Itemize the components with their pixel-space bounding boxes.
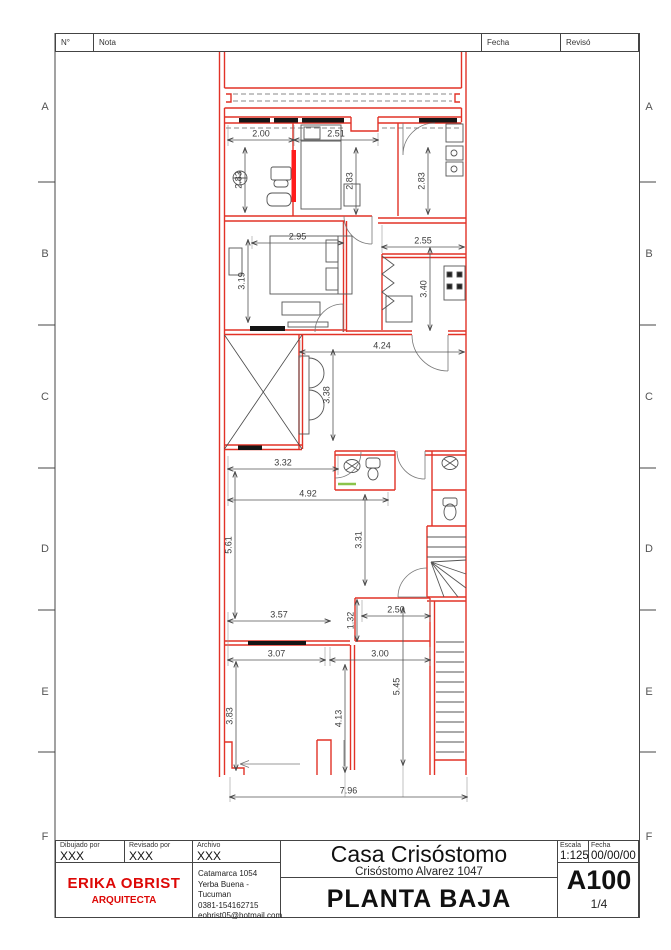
grid-row-letter: F [38, 831, 52, 843]
header-col-no: N° [56, 34, 94, 51]
grid-row-letter: A [38, 101, 52, 113]
grid-row-letter: C [642, 391, 656, 403]
floor-plan: 2.002.512.952.554.243.324.922.503.573.07… [0, 0, 671, 950]
architect-title: ARQUITECTA [56, 895, 192, 906]
kitchen-counter [446, 124, 463, 142]
dimension-label: 5.61 [224, 536, 234, 554]
grid-row-letter: B [642, 248, 656, 260]
bifold-closet-doors [382, 256, 394, 310]
project-address: Crisóstomo Alvarez 1047 [281, 866, 557, 878]
dimension-label: 4.24 [373, 341, 391, 351]
kitchen-sink [446, 146, 463, 160]
dimension-label: 4.92 [299, 489, 317, 499]
dimension-label: 1.32 [346, 612, 356, 630]
reviewed-by-value: XXX [129, 850, 192, 863]
architect-name: ERIKA OBRIST [56, 875, 192, 892]
dimension-label: 7.96 [340, 786, 358, 796]
dimension-label: 3.38 [322, 386, 332, 404]
header-col-nota: Nota [94, 34, 481, 51]
dimension-label: 5.45 [392, 678, 402, 696]
dimension-label: 2.83 [345, 172, 355, 190]
appliance [386, 296, 412, 322]
dresser [229, 248, 242, 275]
toilet [271, 167, 291, 180]
bench [282, 302, 320, 315]
grid-row-letter: C [38, 391, 52, 403]
highlighted-door-jamb [292, 150, 297, 202]
date-cell: Fecha 00/00/00 [589, 841, 640, 863]
living-closet [299, 356, 309, 434]
header-col-fecha: Fecha [481, 34, 561, 51]
address-line: eobrist05@hotmail.com [198, 911, 280, 922]
page-number: 1/4 [558, 897, 640, 911]
stove [444, 266, 465, 300]
grid-row-letter: F [642, 831, 656, 843]
sheet-title-cell: PLANTA BAJA [281, 878, 558, 917]
architect-cell: ERIKA OBRIST ARQUITECTA [56, 863, 193, 917]
scale-cell: Escala 1:125 [558, 841, 589, 863]
lot-boundary-and-walls [220, 52, 467, 777]
project-title-cell: Casa Crisóstomo Crisóstomo Alvarez 1047 [281, 841, 558, 878]
dimension-label: 2.95 [289, 232, 307, 242]
dimension-label: 3.32 [274, 458, 292, 468]
dimension-label: 2.00 [252, 129, 270, 139]
scale-value: 1:125 [560, 850, 588, 863]
scale-label: Escala [560, 842, 588, 850]
dimension-label: 2.83 [417, 172, 427, 190]
sheet-number-cell: A100 1/4 [558, 863, 640, 917]
dimension-label: 3.31 [354, 531, 364, 549]
contact-cell: Catamarca 1054 Yerba Buena - Tucuman 038… [193, 863, 281, 917]
title-block: Dibujado por XXX Revisado por XXX Archiv… [55, 840, 639, 918]
dimension-label: 4.13 [334, 710, 344, 728]
address-line: Yerba Buena - Tucuman [198, 880, 280, 901]
address-line: 0381-154162715 [198, 901, 280, 912]
grid-row-letter: B [38, 248, 52, 260]
dimension-label: 2.55 [414, 236, 432, 246]
sheet-title: PLANTA BAJA [281, 885, 557, 914]
dimension-label: 3.07 [268, 649, 286, 659]
grid-row-letter: E [642, 686, 656, 698]
dimension-label: 2.51 [327, 129, 345, 139]
file-cell: Archivo XXX [193, 841, 281, 863]
drawn-by-value: XXX [60, 850, 124, 863]
revision-header: N° Nota Fecha Revisó [55, 33, 639, 52]
date-value: 00/00/00 [591, 850, 640, 863]
bidet [267, 193, 291, 206]
grid-row-letter: E [38, 686, 52, 698]
dimension-label: 3.83 [225, 707, 235, 725]
grid-row-letter: D [38, 543, 52, 555]
grid-row-letter: D [642, 543, 656, 555]
grid-row-letter: A [642, 101, 656, 113]
patio-cross-lines [225, 335, 303, 449]
reviewed-by-cell: Revisado por XXX [125, 841, 193, 863]
dimension-label: 3.40 [419, 280, 429, 298]
date-label: Fecha [591, 842, 640, 850]
toilet [443, 498, 457, 506]
dimension-label: 3.19 [237, 272, 247, 290]
dimension-label: 3.57 [270, 610, 288, 620]
staircase [427, 537, 466, 752]
address-line: Catamarca 1054 [198, 869, 280, 880]
drawn-by-cell: Dibujado por XXX [56, 841, 125, 863]
sheet-number: A100 [558, 865, 640, 896]
double-bed [270, 236, 352, 294]
dimension-label: 2.83 [234, 171, 244, 189]
project-title: Casa Crisóstomo [281, 842, 557, 866]
dimension-label: 3.00 [371, 649, 389, 659]
dimension-label: 2.50 [387, 605, 405, 615]
toilet [366, 458, 380, 468]
file-value: XXX [197, 850, 280, 863]
header-col-reviso: Revisó [561, 34, 640, 51]
drawing-sheet: 2.002.512.952.554.243.324.922.503.573.07… [0, 0, 671, 950]
